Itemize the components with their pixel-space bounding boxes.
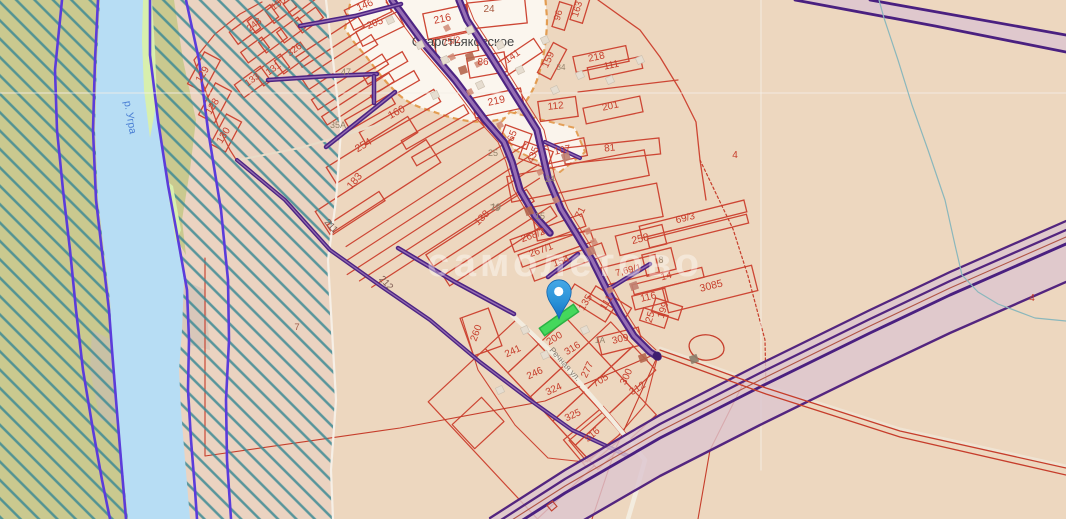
svg-text:15: 15 xyxy=(535,211,545,221)
svg-text:24: 24 xyxy=(545,174,555,184)
svg-text:4: 4 xyxy=(732,150,738,161)
svg-text:4: 4 xyxy=(1029,293,1035,304)
svg-text:самолетово: самолетово xyxy=(427,241,703,285)
svg-text:86: 86 xyxy=(477,57,489,68)
svg-text:1А: 1А xyxy=(595,335,606,345)
svg-text:112: 112 xyxy=(547,100,564,113)
svg-text:35А: 35А xyxy=(330,120,346,130)
svg-text:47: 47 xyxy=(341,67,351,77)
svg-text:24: 24 xyxy=(483,4,495,15)
svg-text:25: 25 xyxy=(488,148,498,158)
svg-text:81: 81 xyxy=(604,142,617,154)
svg-text:34: 34 xyxy=(557,63,566,72)
svg-text:7: 7 xyxy=(294,322,299,333)
svg-text:79: 79 xyxy=(490,203,500,213)
